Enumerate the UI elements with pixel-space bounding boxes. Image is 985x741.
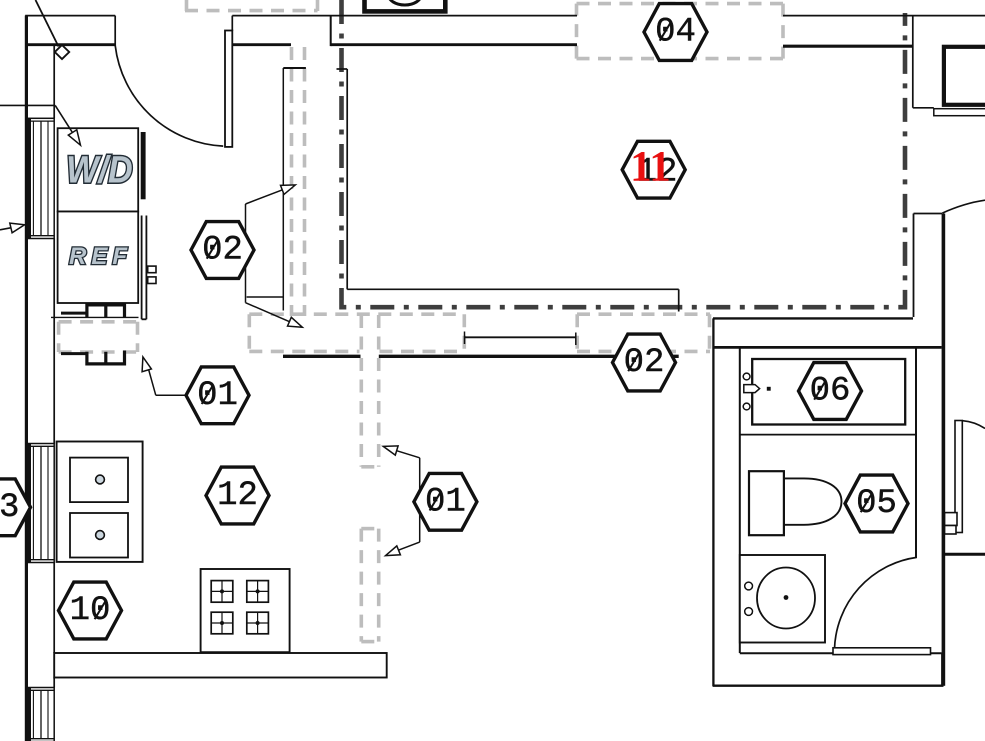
svg-text:10: 10 bbox=[70, 592, 111, 630]
svg-text:01: 01 bbox=[197, 377, 238, 415]
svg-text:02: 02 bbox=[202, 232, 243, 270]
svg-text:W/D: W/D bbox=[66, 148, 132, 191]
svg-text:06: 06 bbox=[810, 373, 851, 411]
svg-text:REF: REF bbox=[69, 243, 132, 270]
svg-text:05: 05 bbox=[856, 485, 897, 523]
svg-text:03: 03 bbox=[0, 489, 19, 527]
svg-text:02: 02 bbox=[624, 344, 665, 382]
svg-text:11: 11 bbox=[630, 144, 671, 191]
svg-text:04: 04 bbox=[655, 14, 696, 52]
svg-text:01: 01 bbox=[425, 483, 466, 521]
svg-text:12: 12 bbox=[217, 477, 258, 515]
